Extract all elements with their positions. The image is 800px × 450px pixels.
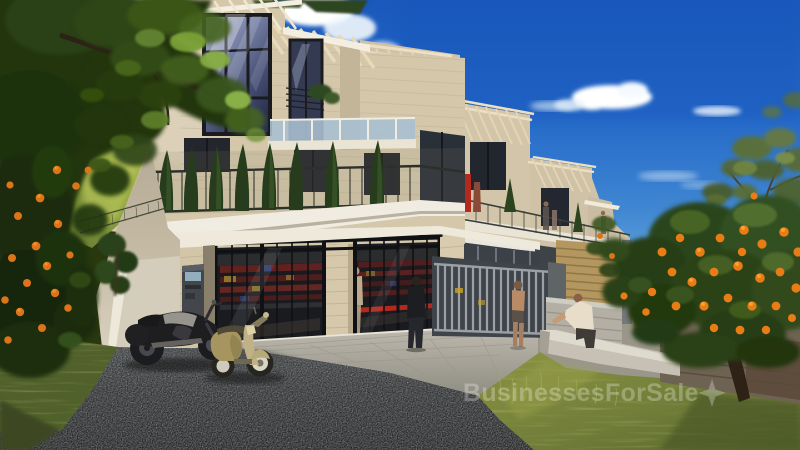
- svg-text:BusinessesForSale: BusinessesForSale: [463, 379, 699, 407]
